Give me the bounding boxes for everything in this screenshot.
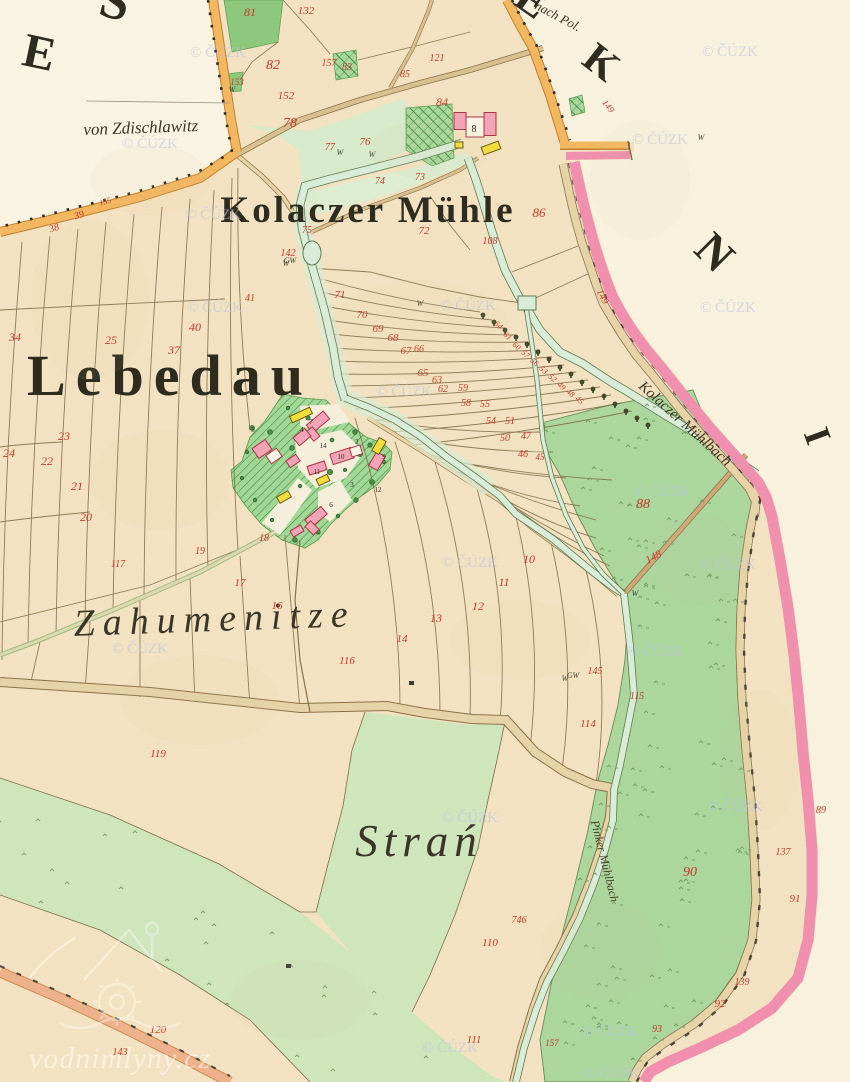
svg-text:10: 10	[523, 552, 535, 566]
svg-text:62: 62	[438, 384, 448, 395]
svg-text:50: 50	[500, 433, 510, 444]
svg-text:3: 3	[350, 481, 354, 489]
svg-text:10: 10	[338, 453, 346, 461]
svg-text:71: 71	[335, 289, 346, 301]
svg-text:21: 21	[71, 479, 83, 493]
svg-text:59: 59	[458, 383, 468, 394]
svg-text:77: 77	[325, 142, 336, 153]
svg-text:108: 108	[483, 236, 498, 247]
svg-text:46: 46	[518, 449, 528, 460]
svg-text:78: 78	[283, 116, 297, 131]
svg-text:Kolaczer Mühle: Kolaczer Mühle	[220, 190, 515, 231]
svg-text:83: 83	[342, 62, 352, 73]
svg-text:© ČÚZK: © ČÚZK	[707, 798, 763, 815]
svg-text:91: 91	[790, 893, 801, 905]
svg-text:76: 76	[360, 136, 372, 148]
svg-text:© ČÚZK: © ČÚZK	[700, 299, 756, 316]
svg-text:© ČÚZK: © ČÚZK	[185, 206, 241, 223]
svg-text:121: 121	[430, 53, 445, 64]
svg-text:24: 24	[3, 446, 15, 460]
svg-text:6: 6	[329, 501, 333, 509]
svg-text:54: 54	[486, 416, 496, 427]
svg-text:22: 22	[41, 454, 53, 468]
svg-text:© ČÚZK: © ČÚZK	[187, 299, 243, 316]
svg-text:© ČÚZK: © ČÚZK	[628, 643, 684, 660]
svg-text:© ČÚZK: © ČÚZK	[702, 43, 758, 60]
svg-text:12: 12	[375, 486, 383, 494]
svg-text:72: 72	[419, 225, 431, 237]
svg-text:137: 137	[776, 847, 792, 858]
svg-text:GW: GW	[284, 256, 298, 265]
svg-text:© ČÚZK: © ČÚZK	[584, 1065, 640, 1082]
svg-text:13: 13	[430, 611, 442, 625]
svg-text:120: 120	[150, 1024, 167, 1036]
svg-text:16: 16	[272, 600, 284, 612]
svg-text:51: 51	[505, 416, 515, 427]
svg-text:110: 110	[482, 937, 498, 949]
svg-text:17: 17	[235, 577, 247, 589]
svg-text:45: 45	[536, 452, 546, 462]
svg-text:116: 116	[339, 655, 355, 667]
svg-text:© ČÚZK: © ČÚZK	[112, 640, 168, 657]
svg-text:75: 75	[302, 225, 312, 236]
svg-text:© ČÚZK: © ČÚZK	[700, 556, 756, 573]
svg-text:23: 23	[58, 429, 70, 443]
svg-text:74: 74	[375, 176, 385, 187]
svg-text:vodnimlyny.cz: vodnimlyny.cz	[29, 1042, 211, 1075]
svg-text:40: 40	[189, 320, 201, 334]
svg-text:90: 90	[683, 865, 697, 880]
svg-text:© ČÚZK: © ČÚZK	[440, 297, 496, 314]
svg-text:© ČÚZK: © ČÚZK	[632, 131, 688, 148]
svg-text:18: 18	[259, 533, 269, 544]
svg-text:58: 58	[461, 398, 471, 409]
svg-text:GW: GW	[567, 671, 581, 680]
svg-text:© ČÚZK: © ČÚZK	[634, 483, 690, 500]
svg-text:4: 4	[300, 426, 304, 434]
svg-text:2: 2	[355, 438, 359, 446]
svg-text:34: 34	[8, 330, 21, 344]
svg-text:119: 119	[150, 748, 166, 760]
svg-text:7: 7	[309, 418, 313, 426]
svg-text:© ČÚZK: © ČÚZK	[376, 383, 432, 400]
svg-text:55: 55	[480, 399, 490, 410]
svg-text:115: 115	[630, 691, 644, 702]
svg-text:41: 41	[245, 293, 255, 304]
svg-text:86: 86	[533, 205, 547, 220]
svg-text:145: 145	[588, 666, 603, 677]
svg-text:11: 11	[498, 575, 509, 589]
svg-text:© ČÚZK: © ČÚZK	[422, 1039, 478, 1056]
svg-text:9: 9	[382, 453, 386, 461]
svg-text:5: 5	[251, 426, 255, 434]
svg-text:157: 157	[545, 1038, 559, 1048]
svg-text:47: 47	[521, 431, 532, 442]
svg-text:19: 19	[195, 546, 205, 557]
svg-text:© ČÚZK: © ČÚZK	[122, 135, 178, 152]
svg-text:152: 152	[278, 90, 295, 102]
svg-text:114: 114	[580, 718, 596, 730]
svg-text:84: 84	[436, 95, 448, 109]
svg-text:139: 139	[735, 977, 750, 988]
svg-text:© ČÚZK: © ČÚZK	[442, 809, 498, 826]
svg-text:93: 93	[652, 1024, 662, 1035]
svg-text:85: 85	[400, 69, 410, 80]
svg-text:14: 14	[397, 633, 409, 645]
svg-text:117: 117	[111, 559, 126, 570]
svg-text:82: 82	[266, 58, 280, 73]
svg-text:© ČÚZK: © ČÚZK	[442, 554, 498, 571]
svg-text:11: 11	[314, 468, 321, 476]
svg-text:746: 746	[512, 915, 527, 926]
svg-text:81: 81	[244, 5, 256, 19]
svg-text:37: 37	[167, 343, 181, 357]
svg-text:92: 92	[715, 998, 727, 1010]
svg-text:© ČÚZK: © ČÚZK	[190, 44, 246, 61]
svg-text:20: 20	[80, 510, 92, 524]
svg-text:14: 14	[320, 442, 328, 450]
svg-text:132: 132	[298, 5, 315, 17]
svg-text:© ČÚZK: © ČÚZK	[582, 1023, 638, 1040]
svg-text:157: 157	[322, 58, 338, 69]
svg-text:89: 89	[816, 805, 826, 816]
